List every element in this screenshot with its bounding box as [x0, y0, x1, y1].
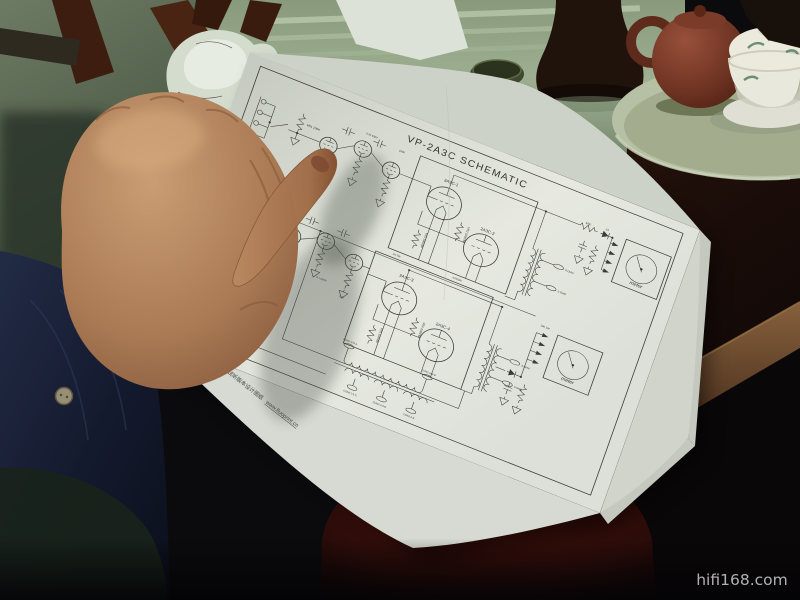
- sleeve-button: [56, 388, 73, 405]
- photo-scene: VP-2A3C SCHEMATIC VR1 100K 2A: [0, 0, 800, 600]
- bottom-vignette: [0, 538, 800, 600]
- watermark-text: hifi168.com: [696, 571, 788, 589]
- photo-canvas: VP-2A3C SCHEMATIC VR1 100K 2A: [0, 0, 800, 600]
- teapot-knob: [694, 5, 706, 17]
